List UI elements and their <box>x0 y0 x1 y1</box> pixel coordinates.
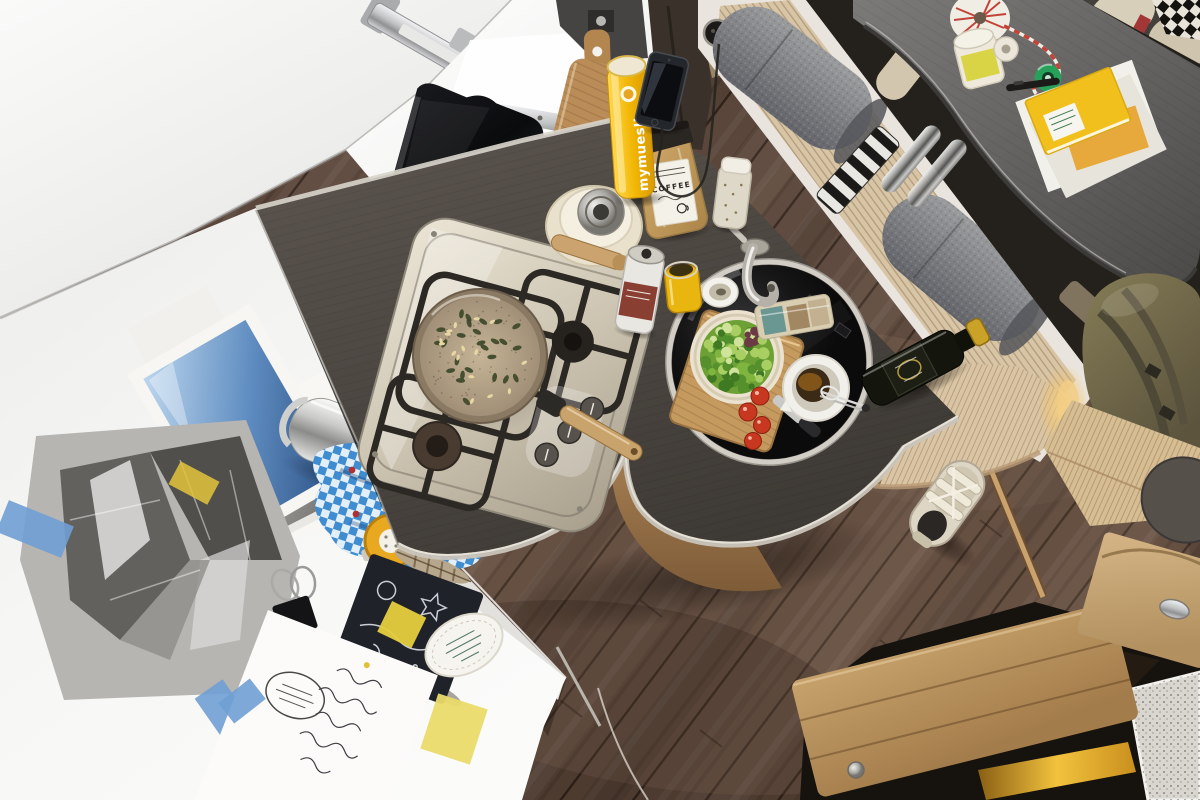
step-knob <box>848 762 864 778</box>
photo-camper-kitchen: COFFEE mymuesli <box>0 0 1200 800</box>
scene: COFFEE mymuesli <box>0 0 1200 800</box>
dressing-bowl <box>702 277 738 307</box>
tape-roll-white <box>994 37 1018 61</box>
